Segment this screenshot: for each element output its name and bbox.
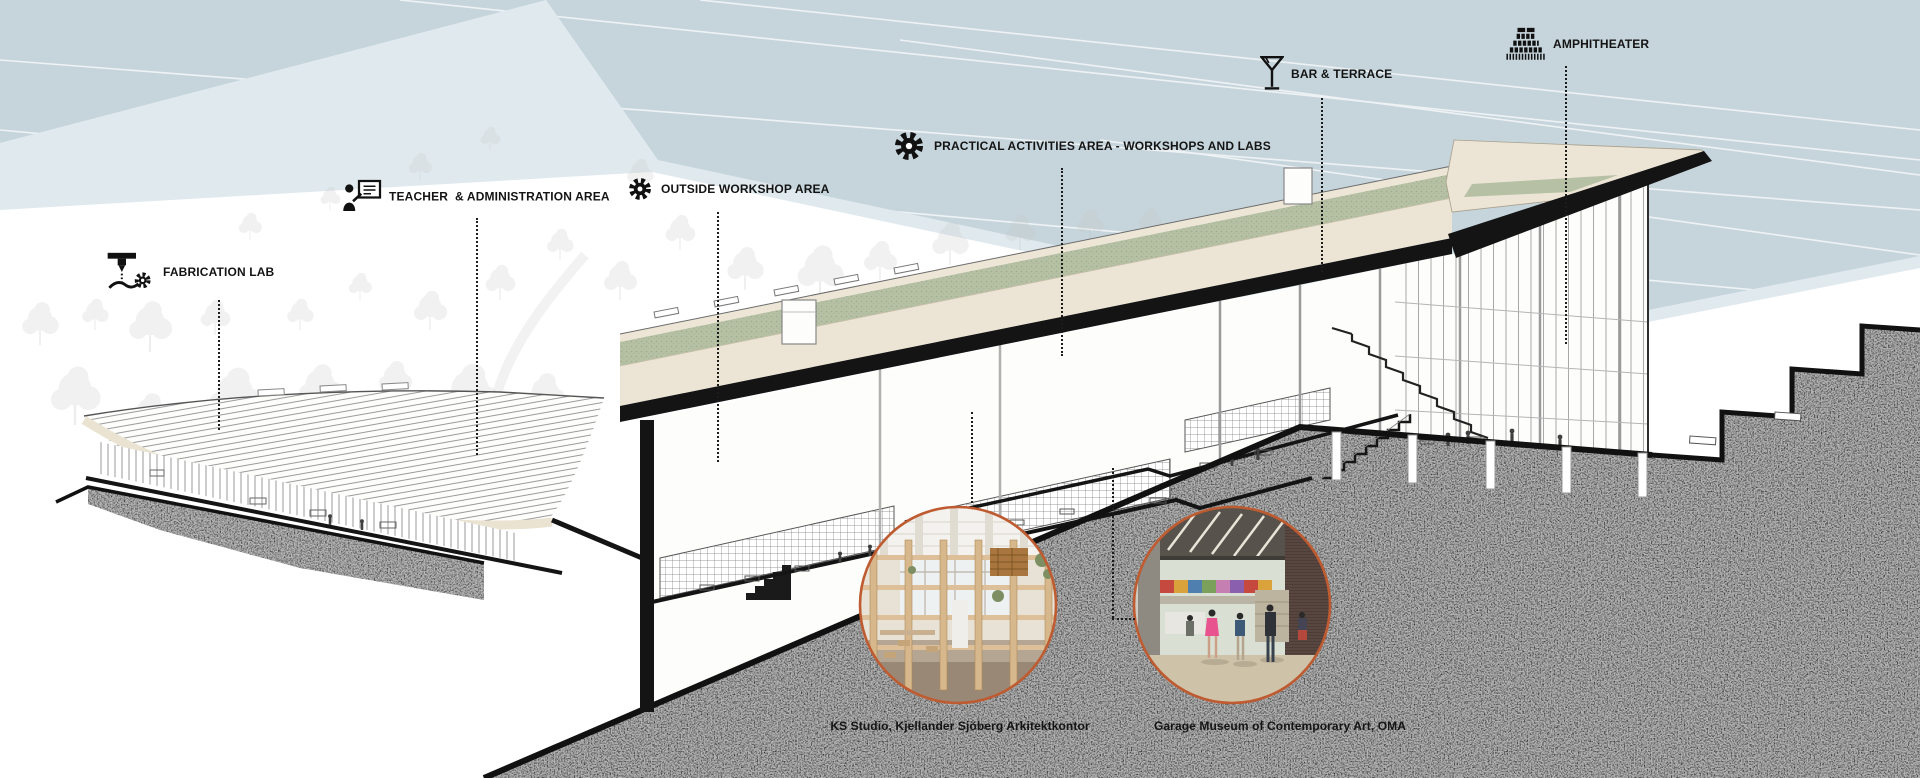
leader-bar-terrace bbox=[1321, 98, 1323, 272]
label-text: AMPHITHEATER bbox=[1553, 38, 1649, 50]
cocktail-glass-icon bbox=[1260, 54, 1284, 94]
reference-photo-right bbox=[1132, 505, 1332, 705]
label-text: FABRICATION LAB bbox=[163, 266, 274, 278]
gear-icon bbox=[891, 128, 927, 164]
label-text: PRACTICAL ACTIVITIES AREA - WORKSHOPS AN… bbox=[934, 140, 1271, 152]
leader-amphitheater bbox=[1565, 66, 1567, 344]
label-practical-activities: PRACTICAL ACTIVITIES AREA - WORKSHOPS AN… bbox=[891, 128, 1271, 164]
label-bar-terrace: BAR & TERRACE bbox=[1260, 54, 1392, 94]
label-outside-workshop: OUTSIDE WORKSHOP AREA bbox=[626, 175, 830, 203]
label-text: TEACHER & ADMINISTRATION AREA bbox=[389, 190, 610, 202]
presenter-board-icon bbox=[342, 180, 382, 213]
label-text: OUTSIDE WORKSHOP AREA bbox=[661, 183, 830, 195]
caption-reference-right: Garage Museum of Contemporary Art, OMA bbox=[1050, 719, 1510, 733]
leader-fabrication-lab bbox=[218, 300, 220, 430]
label-fabrication-lab: FABRICATION LAB bbox=[106, 251, 274, 293]
reference-photo-left bbox=[858, 505, 1058, 705]
leader-teacher-admin bbox=[476, 218, 478, 455]
gear-icon bbox=[626, 175, 654, 203]
leader-photo-right-horizontal bbox=[1112, 618, 1135, 620]
label-teacher-admin: TEACHER & ADMINISTRATION AREA bbox=[342, 180, 610, 213]
leader-photo-right-vertical bbox=[1112, 468, 1114, 618]
amphitheater-tiers-icon bbox=[1506, 27, 1546, 61]
leader-practical-activities bbox=[1061, 168, 1063, 356]
leader-outside-workshop bbox=[717, 212, 719, 462]
fabrication-machine-icon bbox=[106, 251, 156, 293]
architecture-diagram-canvas: FABRICATION LAB TEACHER & ADMINISTRATION… bbox=[0, 0, 1920, 778]
label-amphitheater: AMPHITHEATER bbox=[1506, 27, 1649, 61]
leader-photo-left bbox=[971, 412, 973, 503]
section-axonometric-illustration bbox=[0, 0, 1920, 778]
label-text: BAR & TERRACE bbox=[1291, 68, 1392, 80]
